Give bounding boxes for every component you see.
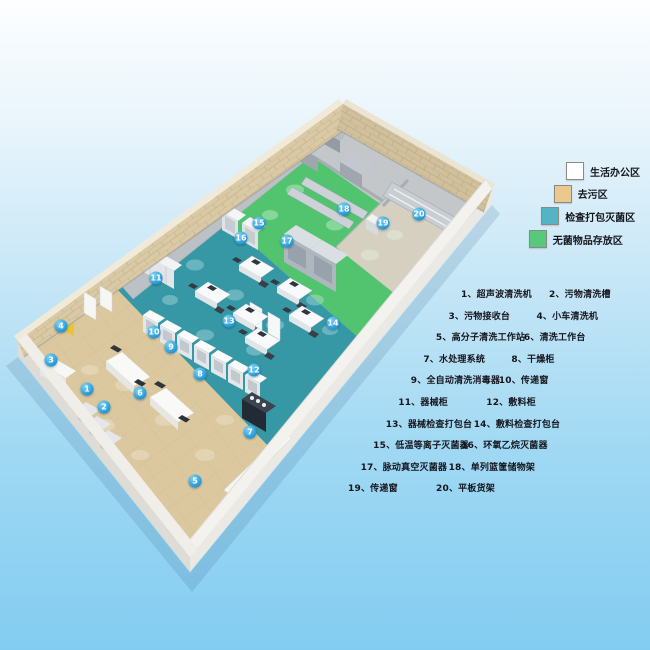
legend-swatch xyxy=(554,185,572,203)
equipment-item: 12、敷料柜 xyxy=(486,395,536,408)
equipment-number: 9、 xyxy=(411,376,427,386)
equipment-number: 12、 xyxy=(486,398,508,408)
legend-label: 生活办公区 xyxy=(590,164,640,179)
equipment-item: 6、清洗工作台 xyxy=(524,330,586,343)
equipment-item: 1、超声波清洗机 xyxy=(461,287,532,300)
equipment-item: 16、环氧乙烷灭菌器 xyxy=(461,438,548,451)
legend-swatch xyxy=(541,207,559,225)
equipment-item: 11、器械柜 xyxy=(398,395,448,408)
legend: 生活办公区去污区检查打包灭菌区无菌物品存放区 xyxy=(500,150,650,260)
legend-item: 无菌物品存放区 xyxy=(529,230,623,248)
equipment-number: 16、 xyxy=(461,441,483,451)
equipment-label: 高分子清洗工作站 xyxy=(452,333,526,343)
legend-item: 去污区 xyxy=(554,185,608,203)
equipment-label: 清洗工作台 xyxy=(540,333,586,343)
equipment-label: 单列篮筐储物架 xyxy=(471,463,535,473)
equipment-label: 平板货架 xyxy=(458,484,495,494)
equipment-number: 10、 xyxy=(499,376,521,386)
equipment-item: 19、传递窗 xyxy=(348,481,398,494)
equipment-label: 超声波清洗机 xyxy=(477,290,532,300)
equipment-number: 13、 xyxy=(386,420,408,430)
legend-label: 无菌物品存放区 xyxy=(553,232,623,247)
equipment-label: 全自动清洗消毒器 xyxy=(426,376,500,386)
equipment-number: 17、 xyxy=(361,463,383,473)
equipment-number: 19、 xyxy=(348,484,370,494)
equipment-item: 8、干燥柜 xyxy=(511,352,554,365)
equipment-number: 6、 xyxy=(524,333,540,343)
equipment-item: 18、单列篮筐储物架 xyxy=(449,460,536,473)
equipment-number: 15、 xyxy=(373,441,395,451)
equipment-label: 小车清洗机 xyxy=(552,312,598,322)
equipment-label: 环氧乙烷灭菌器 xyxy=(483,441,547,451)
equipment-number: 3、 xyxy=(448,312,464,322)
equipment-item: 4、小车清洗机 xyxy=(536,309,598,322)
equipment-label: 干燥柜 xyxy=(527,355,555,365)
equipment-number: 7、 xyxy=(423,355,439,365)
equipment-label: 污物接收台 xyxy=(464,312,510,322)
equipment-item: 2、污物清洗槽 xyxy=(549,287,611,300)
equipment-item: 3、污物接收台 xyxy=(448,309,510,322)
equipment-item: 14、敷料检查打包台 xyxy=(474,417,561,430)
equipment-list: 1、超声波清洗机2、污物清洗槽3、污物接收台4、小车清洗机5、高分子清洗工作站6… xyxy=(340,281,650,496)
equipment-label: 敷料柜 xyxy=(508,398,536,408)
equipment-label: 敷料检查打包台 xyxy=(496,420,560,430)
equipment-item: 10、传递窗 xyxy=(499,373,549,386)
equipment-number: 11、 xyxy=(398,398,420,408)
equipment-label: 低温等离子灭菌器 xyxy=(395,441,469,451)
equipment-item: 15、低温等离子灭菌器 xyxy=(373,438,469,451)
equipment-label: 传递窗 xyxy=(370,484,398,494)
equipment-item: 13、器械检查打包台 xyxy=(386,417,473,430)
equipment-number: 4、 xyxy=(536,312,552,322)
legend-label: 检查打包灭菌区 xyxy=(565,209,635,224)
legend-label: 去污区 xyxy=(578,186,608,201)
equipment-label: 传递窗 xyxy=(521,376,549,386)
equipment-number: 1、 xyxy=(461,290,477,300)
equipment-number: 18、 xyxy=(449,463,471,473)
equipment-label: 脉动真空灭菌器 xyxy=(383,463,447,473)
legend-swatch xyxy=(529,230,547,248)
equipment-number: 20、 xyxy=(436,484,458,494)
equipment-label: 水处理系统 xyxy=(439,355,485,365)
equipment-label: 器械柜 xyxy=(420,398,448,408)
scene: 1234567891011121314151617181920 生活办公区去污区… xyxy=(0,0,650,650)
equipment-number: 2、 xyxy=(549,290,565,300)
equipment-item: 5、高分子清洗工作站 xyxy=(436,330,525,343)
equipment-item: 20、平板货架 xyxy=(436,481,495,494)
equipment-item: 7、水处理系统 xyxy=(423,352,485,365)
equipment-label: 污物清洗槽 xyxy=(565,290,611,300)
equipment-item: 9、全自动清洗消毒器 xyxy=(411,373,500,386)
legend-item: 生活办公区 xyxy=(566,162,640,180)
legend-item: 检查打包灭菌区 xyxy=(541,207,635,225)
equipment-label: 器械检查打包台 xyxy=(408,420,472,430)
legend-swatch xyxy=(566,162,584,180)
equipment-number: 5、 xyxy=(436,333,452,343)
equipment-number: 14、 xyxy=(474,420,496,430)
equipment-number: 8、 xyxy=(511,355,527,365)
equipment-item: 17、脉动真空灭菌器 xyxy=(361,460,448,473)
